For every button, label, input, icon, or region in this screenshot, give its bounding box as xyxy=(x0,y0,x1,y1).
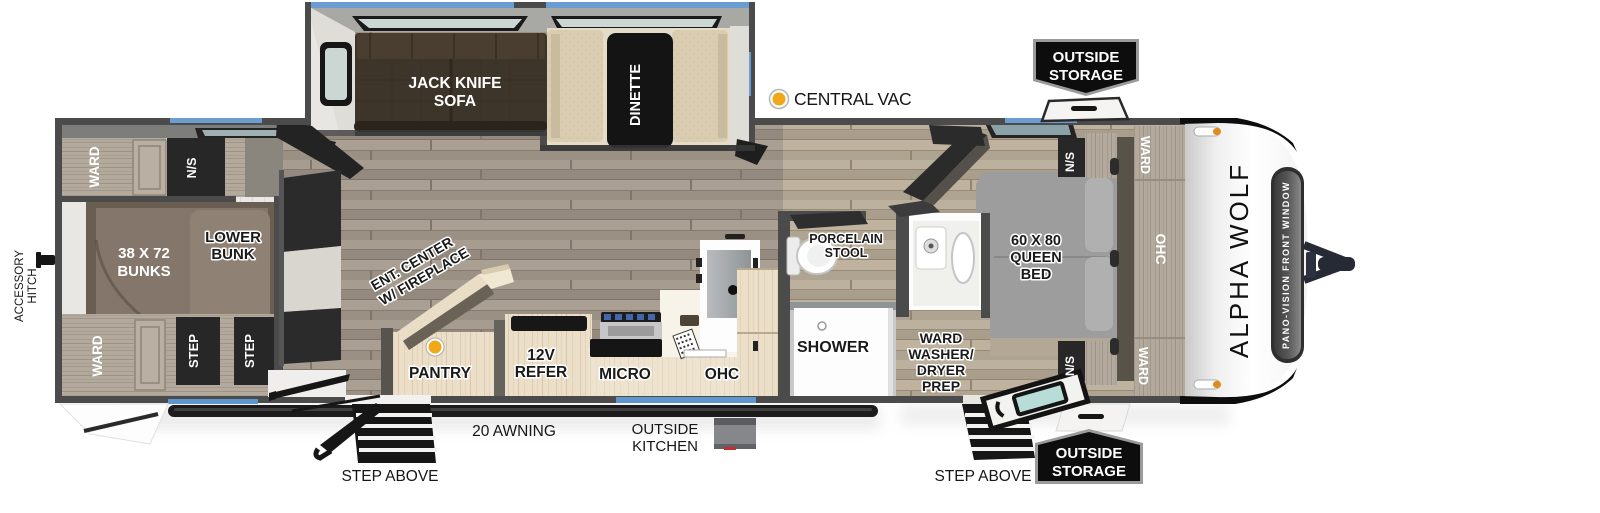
svg-text:WARD: WARD xyxy=(1138,136,1152,174)
svg-text:38 X 72: 38 X 72 xyxy=(118,245,170,262)
svg-text:N/S: N/S xyxy=(1063,152,1077,172)
svg-text:MICRO: MICRO xyxy=(599,366,651,383)
svg-text:STOOL: STOOL xyxy=(825,246,868,260)
svg-text:12V: 12V xyxy=(527,347,555,364)
svg-text:JACK KNIFE: JACK KNIFE xyxy=(408,75,501,92)
svg-text:ACCESSORY: ACCESSORY xyxy=(14,250,26,322)
svg-text:CENTRAL VAC: CENTRAL VAC xyxy=(794,89,911,109)
svg-text:BUNKS: BUNKS xyxy=(117,263,170,280)
svg-text:OHC: OHC xyxy=(705,366,739,383)
svg-text:OUTSIDE: OUTSIDE xyxy=(1053,49,1120,66)
svg-text:BUNK: BUNK xyxy=(211,246,254,263)
svg-text:N/S: N/S xyxy=(1063,356,1077,376)
svg-text:WARD: WARD xyxy=(87,146,102,187)
svg-text:WARD: WARD xyxy=(920,330,963,346)
svg-text:ALPHA WOLF: ALPHA WOLF xyxy=(1224,162,1254,358)
svg-text:STORAGE: STORAGE xyxy=(1052,463,1126,480)
svg-text:OUTSIDE: OUTSIDE xyxy=(1056,445,1123,462)
svg-text:PREP: PREP xyxy=(922,378,960,394)
svg-text:DRYER: DRYER xyxy=(917,362,966,378)
svg-text:PANO-VISION FRONT WINDOW: PANO-VISION FRONT WINDOW xyxy=(1281,181,1291,349)
svg-text:QUEEN: QUEEN xyxy=(1010,250,1062,266)
svg-text:WARD: WARD xyxy=(90,335,105,376)
svg-text:STEP: STEP xyxy=(242,334,257,368)
svg-text:60 X 80: 60 X 80 xyxy=(1011,233,1061,249)
svg-text:STEP ABOVE: STEP ABOVE xyxy=(934,468,1031,485)
svg-text:PANTRY: PANTRY xyxy=(409,365,472,382)
svg-text:20 AWNING: 20 AWNING xyxy=(472,423,556,440)
svg-text:STEP ABOVE: STEP ABOVE xyxy=(341,468,438,485)
svg-text:HITCH: HITCH xyxy=(27,268,39,303)
svg-text:REFER: REFER xyxy=(515,364,568,381)
svg-text:PORCELAIN: PORCELAIN xyxy=(809,232,883,246)
svg-text:SHOWER: SHOWER xyxy=(797,339,869,356)
svg-text:DINETTE: DINETTE xyxy=(628,64,644,126)
svg-text:WASHER/: WASHER/ xyxy=(908,346,973,362)
svg-text:STORAGE: STORAGE xyxy=(1049,67,1123,84)
svg-text:WARD: WARD xyxy=(1136,347,1150,385)
svg-text:BED: BED xyxy=(1021,267,1052,283)
svg-text:OUTSIDE: OUTSIDE xyxy=(632,421,699,438)
svg-text:OHC: OHC xyxy=(1153,233,1169,264)
svg-text:KITCHEN: KITCHEN xyxy=(632,438,698,455)
svg-text:SOFA: SOFA xyxy=(434,93,476,110)
svg-text:N/S: N/S xyxy=(185,158,199,179)
svg-text:STEP: STEP xyxy=(186,334,201,368)
svg-text:LOWER: LOWER xyxy=(205,229,261,246)
